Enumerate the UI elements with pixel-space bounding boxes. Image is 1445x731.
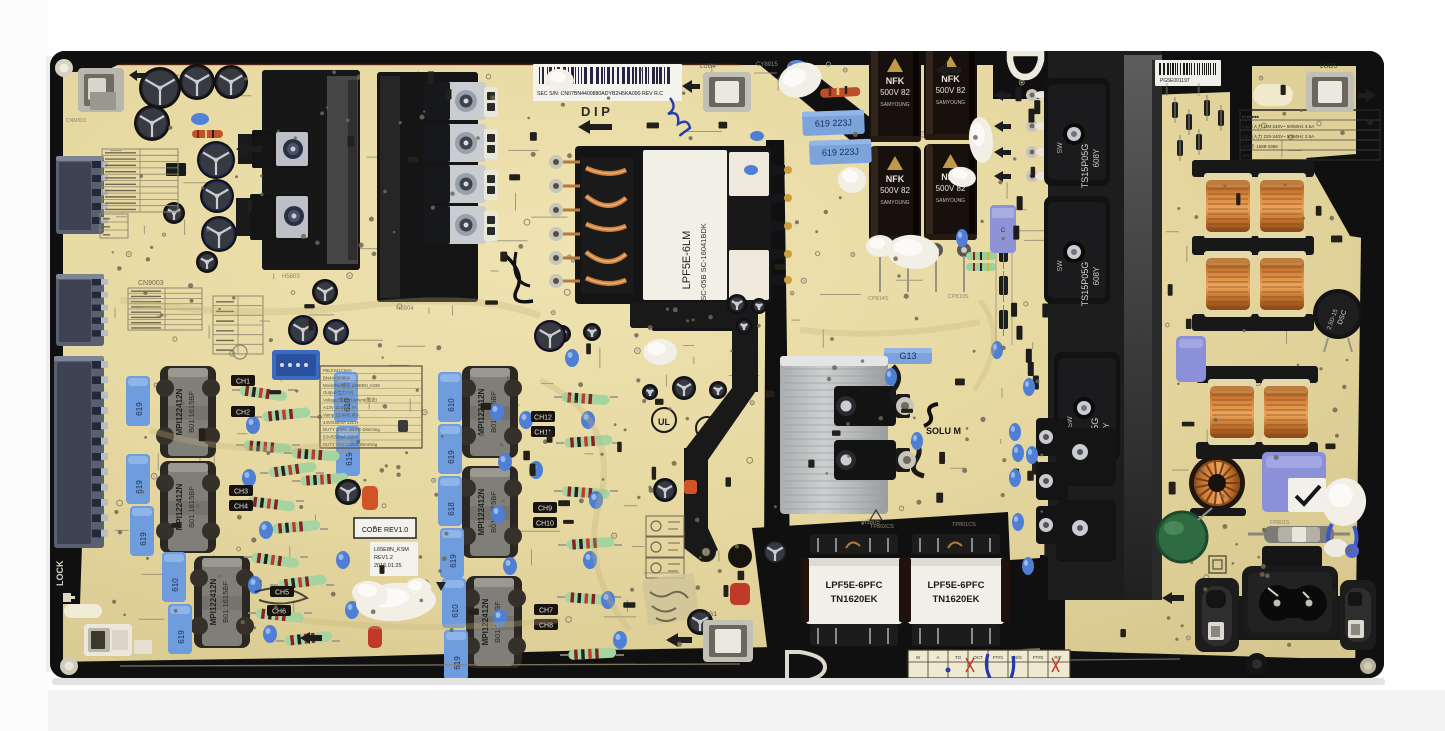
svg-text:SAMYOUNG: SAMYOUNG <box>936 198 965 204</box>
svg-text:MPI122412N: MPI122412N <box>477 388 486 435</box>
svg-text:SW: SW <box>1057 260 1064 272</box>
svg-text:619: 619 <box>453 656 462 670</box>
svg-text:619: 619 <box>447 450 456 464</box>
svg-text:LOCK: LOCK <box>55 560 65 586</box>
svg-text:619 223J: 619 223J <box>815 118 852 129</box>
svg-text:CODE REV1.0: CODE REV1.0 <box>362 527 408 534</box>
svg-text:Vamp 12.8V/0.86A: Vamp 12.8V/0.86A <box>323 412 360 417</box>
svg-text:TS15P05G: TS15P05G <box>1080 262 1090 307</box>
svg-text:SAMYOUNG: SAMYOUNG <box>880 102 909 108</box>
svg-text:B01 1615BF: B01 1615BF <box>187 486 196 528</box>
svg-text:DUTY 100% 300Hz Dimming: DUTY 100% 300Hz Dimming <box>323 427 380 432</box>
svg-text:FT#1: FT#1 <box>993 655 1004 660</box>
svg-text:TS15P05G: TS15P05G <box>1080 144 1090 189</box>
svg-text:CH3: CH3 <box>234 489 248 496</box>
svg-text:LUG4: LUG4 <box>700 64 716 70</box>
svg-text:618: 618 <box>447 502 456 516</box>
svg-text:OCT: OCT <box>973 655 983 660</box>
svg-text:LUG5: LUG5 <box>1320 63 1337 70</box>
svg-text:619: 619 <box>449 554 458 568</box>
svg-text:G13: G13 <box>899 351 916 361</box>
svg-text:619: 619 <box>345 452 354 466</box>
svg-text:608Y: 608Y <box>1092 148 1101 167</box>
svg-text:ModelNo/模名 L65E8N_KSM: ModelNo/模名 L65E8N_KSM <box>323 382 380 389</box>
svg-text:BN44-00880A: BN44-00880A <box>323 375 351 380</box>
svg-text:CM804: CM804 <box>1164 82 1169 96</box>
svg-text:CH4: CH4 <box>234 504 248 511</box>
svg-text:2016.01.25: 2016.01.25 <box>374 563 402 569</box>
svg-text:P5LF241C60A: P5LF241C60A <box>323 368 352 373</box>
svg-text:Input/入力 220-240V~ 50/60Hz 2.5: Input/入力 220-240V~ 50/60Hz 2.5A <box>1242 133 1314 140</box>
svg-text:■●■■■■■: ■●■■■■■ <box>1242 114 1259 119</box>
svg-text:CY8915: CY8915 <box>756 62 778 68</box>
svg-text:CNM803: CNM803 <box>66 118 86 124</box>
svg-text:Output/出力 (V): Output/出力 (V) <box>323 389 354 396</box>
svg-text:619: 619 <box>139 532 148 546</box>
svg-text:Input/入力 100-240V~ 50/60Hz 4.5: Input/入力 100-240V~ 50/60Hz 4.5A <box>1242 123 1314 130</box>
svg-text:CH9: CH9 <box>538 506 552 513</box>
svg-text:619: 619 <box>135 402 144 416</box>
svg-text:MPI122412N: MPI122412N <box>477 488 486 535</box>
svg-text:500V 82: 500V 82 <box>880 88 910 97</box>
svg-text:608Y: 608Y <box>1092 266 1101 285</box>
svg-text:LUG1: LUG1 <box>700 611 717 618</box>
svg-text:R/F: R/F <box>1054 655 1062 660</box>
svg-text:610: 610 <box>447 398 456 412</box>
svg-text:REV1.2: REV1.2 <box>374 555 393 561</box>
svg-text:L65E8N_KSM: L65E8N_KSM <box>374 547 409 553</box>
svg-text:CM802: CM802 <box>1196 82 1201 96</box>
svg-text:610: 610 <box>451 604 460 618</box>
svg-text:B01 1615BF: B01 1615BF <box>221 581 230 623</box>
svg-text:TP802CS: TP802CS <box>870 524 894 530</box>
svg-text:619 223J: 619 223J <box>822 147 859 158</box>
svg-text:FT#2: FT#2 <box>1033 655 1044 660</box>
svg-text:CH6: CH6 <box>272 609 286 616</box>
svg-text:SEC S/N: CN07BN4400880ADYB2H5K: SEC S/N: CN07BN4400880ADYB2H5KA090 REV R… <box>537 91 663 97</box>
svg-text:NFK: NFK <box>886 76 905 86</box>
svg-text:CH10: CH10 <box>536 521 554 528</box>
svg-text:C: C <box>1001 228 1006 234</box>
svg-text:SAMYOUNG: SAMYOUNG <box>936 100 965 106</box>
svg-text:CH7: CH7 <box>539 608 553 615</box>
svg-text:SAMYOUNG: SAMYOUNG <box>880 200 909 206</box>
svg-text:CP814S: CP814S <box>868 296 889 302</box>
svg-text:619: 619 <box>177 630 186 644</box>
svg-text:CN9003: CN9003 <box>138 280 164 287</box>
svg-text:B/G: B/G <box>1014 655 1022 660</box>
svg-text:D I P: D I P <box>581 104 610 119</box>
svg-text:Voltage(電壓)/Current(電流): Voltage(電壓)/Current(電流) <box>323 397 377 404</box>
svg-text:H5803: H5803 <box>282 274 300 280</box>
svg-text:LPF5E-6LM: LPF5E-6LM <box>681 231 693 290</box>
svg-text:A: A <box>936 655 939 660</box>
svg-text:TO: TO <box>955 655 962 660</box>
svg-text:TP801CS: TP801CS <box>952 522 976 528</box>
svg-text:UL: UL <box>658 417 670 427</box>
svg-text:MPI122412N: MPI122412N <box>481 598 490 645</box>
svg-text:610: 610 <box>171 578 180 592</box>
svg-text:S/N:: S/N: <box>1242 153 1251 158</box>
svg-text:SC-05B SC-16041BDK: SC-05B SC-16041BDK <box>699 223 708 301</box>
svg-text:SW: SW <box>1067 416 1074 428</box>
svg-text:LPF5E-6PFC: LPF5E-6PFC <box>927 580 984 591</box>
svg-text:MPI122412N: MPI122412N <box>209 578 218 625</box>
svg-text:SOLU M: SOLU M <box>926 426 961 436</box>
svg-text:B01 1615BF: B01 1615BF <box>187 391 196 433</box>
svg-text:NFK: NFK <box>941 74 960 84</box>
svg-text:CH1: CH1 <box>236 379 250 386</box>
svg-text:TN1620EK: TN1620EK <box>831 594 878 605</box>
svg-text:CH5: CH5 <box>275 590 289 597</box>
svg-text:LPF5E-6PFC: LPF5E-6PFC <box>825 580 882 591</box>
svg-text:CH2: CH2 <box>236 410 250 417</box>
svg-text:FP8015: FP8015 <box>1270 520 1289 526</box>
svg-text:500V 82: 500V 82 <box>880 186 910 195</box>
svg-text:CP810S: CP810S <box>948 294 969 300</box>
svg-text:500V 82: 500V 82 <box>936 86 966 95</box>
svg-text:MPI122412N: MPI122412N <box>175 388 184 435</box>
svg-text:SW: SW <box>1057 142 1064 154</box>
svg-text:TN1620EK: TN1620EK <box>933 594 980 605</box>
svg-text:H5804: H5804 <box>396 306 414 312</box>
svg-text:53V/550mA 12CH: 53V/550mA 12CH <box>323 435 358 440</box>
svg-text:44V/250mA 12CH: 44V/250mA 12CH <box>323 420 358 425</box>
svg-text:A13V 12.8V/6.7A: A13V 12.8V/6.7A <box>323 405 357 410</box>
svg-text:NFK: NFK <box>886 174 905 184</box>
svg-text:CH12: CH12 <box>534 415 552 422</box>
